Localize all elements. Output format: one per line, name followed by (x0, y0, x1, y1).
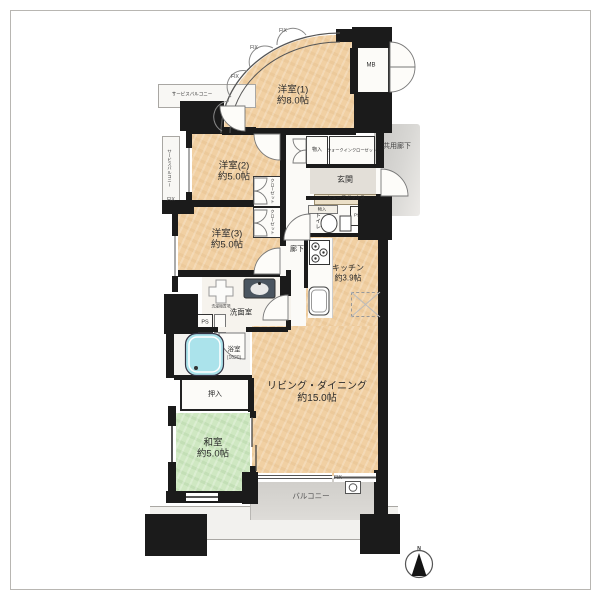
service-balcony-label-top: サービスバルコニー (172, 91, 212, 96)
pipe-space-label: PS (354, 212, 360, 217)
window (186, 148, 192, 192)
shoe-box-label: シューズボックス (327, 196, 365, 202)
sliding-window (258, 473, 332, 482)
room-size: 約5.0帖 (197, 449, 229, 460)
wall (374, 470, 388, 516)
north-label: N (417, 546, 421, 552)
floor-plan: 洋室(1) 約8.0帖 洋室(2) 約5.0帖 洋室(3) 約5.0帖 和室 約… (0, 0, 600, 599)
fridge-space (351, 292, 380, 317)
door-opening (286, 296, 291, 320)
window (186, 493, 218, 501)
room-name: 洋室(3) (211, 229, 243, 240)
room-name: リビング・ダイニング (267, 381, 367, 393)
room-size: 約15.0帖 (267, 393, 367, 405)
washroom-label: 洗面室 (230, 308, 253, 317)
entrance-hall-floor (284, 164, 312, 194)
room-size: 約8.0帖 (277, 96, 309, 107)
wall (286, 270, 291, 296)
oshiire-label: 押入 (208, 391, 222, 399)
wall (242, 472, 258, 504)
fix-label-curve1: FIX (279, 28, 287, 34)
room-size: 約5.0帖 (218, 172, 250, 183)
wall (168, 406, 176, 426)
wall (354, 92, 392, 133)
wall (304, 236, 308, 288)
room-label-western1: 洋室(1) 約8.0帖 (277, 85, 309, 108)
bathroom-size-label: (1620) (227, 355, 241, 361)
room-name: 洋室(1) (277, 85, 309, 96)
wall (306, 164, 378, 168)
pillar (145, 514, 207, 556)
kitchen-counter (308, 238, 333, 318)
wall (250, 411, 256, 418)
fix-label-left: FIX (167, 197, 175, 203)
wall (352, 27, 392, 48)
service-balcony-label-left: サービスバルコニー (167, 149, 172, 187)
fix-label-curve2: FIX (250, 45, 258, 51)
door-opening (280, 246, 286, 276)
entrance-label: 玄関 (337, 175, 353, 185)
meter-box-label: MB (367, 62, 376, 69)
wall (186, 200, 254, 207)
storage-label2: 物入 (318, 206, 326, 211)
entrance-opening (376, 168, 384, 194)
bathroom-label: 浴室 (228, 346, 241, 354)
washer-place-label: 洗濯機置場 (212, 305, 231, 310)
corridor-label: 廊下 (290, 246, 304, 254)
toilet-label: トイレ (314, 213, 321, 230)
room-label-western2: 洋室(2) 約5.0帖 (218, 161, 250, 184)
wall (336, 29, 356, 42)
wall (306, 233, 382, 237)
wall (280, 135, 286, 246)
closet-label-2: クローゼット (270, 209, 275, 234)
room-label-japanese: 和室 約5.0帖 (197, 438, 229, 461)
wall (172, 214, 178, 236)
window (168, 426, 176, 462)
wall (174, 375, 252, 380)
wall (168, 462, 176, 492)
room-name: 和室 (197, 438, 229, 449)
wall (186, 133, 192, 148)
fix-label-curve3: FIX (231, 74, 239, 80)
wall (172, 276, 178, 292)
walk-in-closet-label: ウォークインクローゼット (327, 147, 377, 152)
wall (166, 334, 174, 378)
pillar (360, 514, 400, 554)
room-label-kitchen: キッチン 約3.9帖 (332, 263, 364, 282)
closet-divider (253, 206, 282, 208)
window (172, 236, 178, 276)
fix-label-living: FIX (334, 475, 342, 481)
wall (350, 48, 358, 94)
wall (180, 101, 224, 131)
balcony-label: バルコニー (292, 492, 329, 501)
room-size: 約5.0帖 (211, 240, 243, 251)
room-label-living: リビング・ダイニング 約15.0帖 (267, 381, 367, 405)
wall (248, 378, 254, 412)
room-size: 約3.9帖 (332, 273, 364, 283)
wall (378, 236, 388, 472)
room-label-western3: 洋室(3) 約5.0帖 (211, 229, 243, 252)
wall (172, 270, 290, 277)
room-name: キッチン (332, 263, 364, 273)
closet-label-1: クローゼット (270, 178, 275, 203)
pipe-space-label2: PS (201, 320, 208, 327)
common-corridor-label: 共用廊下 (383, 143, 411, 151)
door-opening (218, 327, 246, 332)
storage-label: 物入 (312, 147, 322, 153)
room-name: 洋室(2) (218, 161, 250, 172)
